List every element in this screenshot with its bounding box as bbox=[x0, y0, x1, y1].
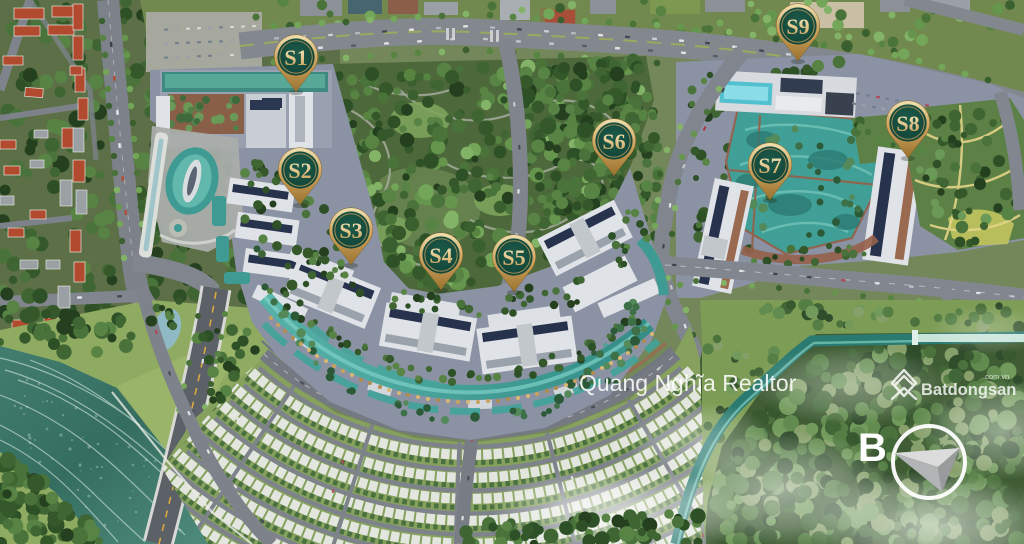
svg-text:S1: S1 bbox=[284, 45, 307, 70]
svg-text:S5: S5 bbox=[502, 245, 525, 270]
svg-text:S9: S9 bbox=[786, 14, 809, 39]
svg-text:S2: S2 bbox=[288, 158, 311, 183]
svg-text:Quang Nghĩa Realtor: Quang Nghĩa Realtor bbox=[579, 370, 797, 396]
svg-text:S4: S4 bbox=[429, 243, 452, 268]
svg-text:S3: S3 bbox=[339, 218, 362, 243]
svg-text:.com.vn: .com.vn bbox=[983, 372, 1009, 381]
svg-text:B: B bbox=[858, 426, 887, 470]
svg-text:S7: S7 bbox=[758, 153, 781, 178]
svg-text:S6: S6 bbox=[602, 129, 625, 154]
svg-text:S8: S8 bbox=[896, 111, 919, 136]
svg-text:Batdongsan: Batdongsan bbox=[921, 381, 1016, 399]
